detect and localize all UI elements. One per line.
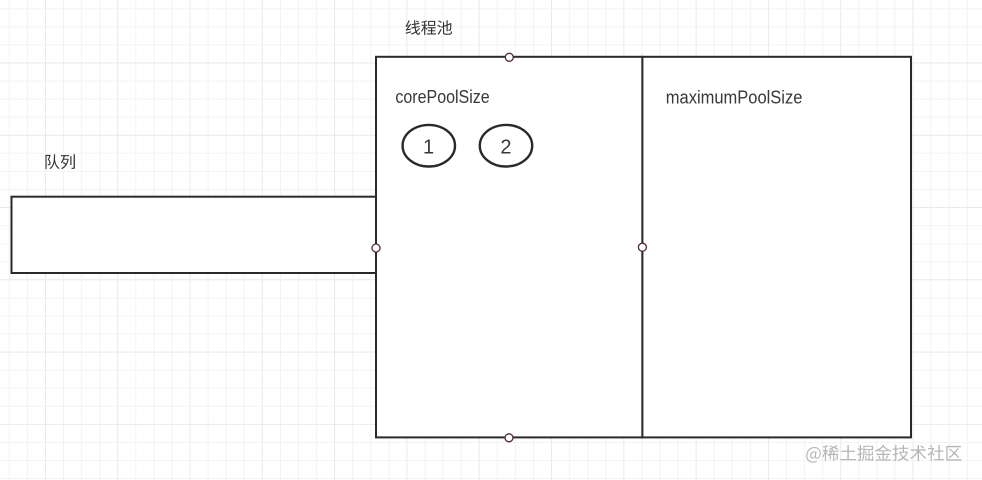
svg-text:2: 2 <box>500 136 511 158</box>
svg-text:maximumPoolSize: maximumPoolSize <box>666 87 803 107</box>
svg-text:corePoolSize: corePoolSize <box>395 87 489 107</box>
svg-text:1: 1 <box>423 136 434 158</box>
